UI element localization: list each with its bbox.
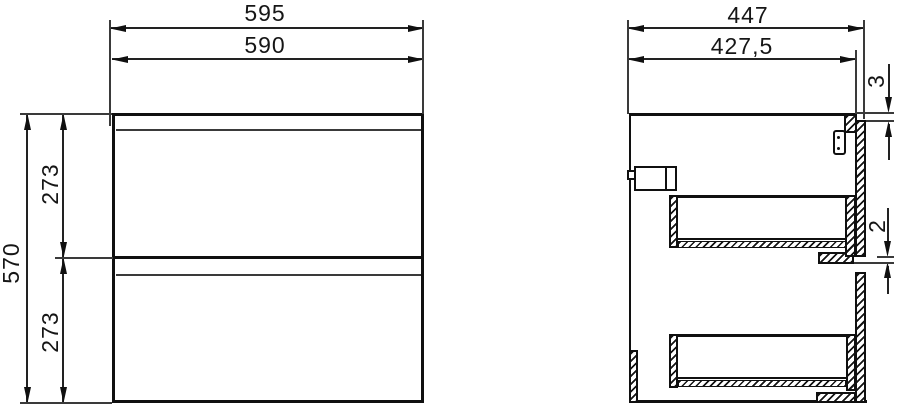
dimension-label-overall-width: 595 <box>225 1 305 25</box>
dimension-label-overall-depth: 447 <box>708 3 788 27</box>
dimension-line-overall-depth <box>628 27 864 29</box>
upper-drawer-bottom-edge-line <box>678 238 846 240</box>
dimension-label-body-width: 590 <box>225 33 305 57</box>
arrowhead-icon <box>884 241 891 257</box>
extension-line <box>627 20 629 114</box>
dimension-label-lower-front-height: 273 <box>38 297 62 367</box>
front-view-upper-drawer-gap-line <box>116 129 421 131</box>
extension-line <box>866 120 894 122</box>
front-view-drawer-separation-line <box>113 256 423 259</box>
technical-drawing-canvas: 595 590 570 273 273 <box>0 0 898 409</box>
extension-line <box>854 262 894 264</box>
side-view-back-bottom-rail-section <box>629 350 638 403</box>
lower-drawer-front-section <box>855 272 866 403</box>
extension-line <box>422 20 424 114</box>
dimension-label-front-gap: 2 <box>865 201 885 251</box>
wall-mount-bracket-tab <box>627 170 636 180</box>
dimension-line-body-depth <box>628 58 856 60</box>
dimension-line-lower-front-height <box>62 258 64 403</box>
dimension-label-body-depth: 427,5 <box>702 34 782 58</box>
dimension-label-upper-front-height: 273 <box>38 149 62 219</box>
arrowhead-icon <box>885 121 892 137</box>
dimension-line-top-gap-upper <box>888 64 890 98</box>
upper-drawer-bottom-panel-section <box>678 241 846 248</box>
upper-drawer-top-edge-line <box>670 195 847 198</box>
extension-line <box>109 20 111 126</box>
extension-line <box>877 256 894 258</box>
hinge-bracket <box>833 130 846 155</box>
front-view-lower-drawer-gap-line <box>116 274 421 276</box>
lower-drawer-front-wall-section <box>846 334 856 391</box>
wall-mount-bracket-inner-line <box>665 168 667 189</box>
dimension-line-overall-height <box>26 114 28 403</box>
upper-drawer-back-wall-section <box>669 195 678 248</box>
lower-drawer-bottom-panel-section <box>678 380 846 387</box>
extension-line <box>855 50 857 114</box>
arrowhead-icon <box>884 262 891 278</box>
wall-mount-bracket <box>634 166 677 191</box>
screw-hole-icon <box>837 136 840 139</box>
lower-drawer-back-wall-section <box>669 334 678 388</box>
side-view-top-line <box>629 113 857 116</box>
dimension-line-overall-width <box>110 27 424 29</box>
dimension-line-upper-front-height <box>62 114 64 258</box>
dimension-line-body-width <box>112 58 424 60</box>
extension-line <box>20 113 112 115</box>
extension-line <box>20 402 112 404</box>
extension-line <box>856 112 894 114</box>
dimension-label-overall-height: 570 <box>0 228 23 298</box>
lower-drawer-top-edge-line <box>670 334 847 337</box>
dimension-label-top-gap: 3 <box>864 56 884 106</box>
extension-line <box>55 257 113 259</box>
dimension-line-front-gap-upper <box>887 208 889 242</box>
side-view-bottom-front-rail-section <box>816 392 856 403</box>
arrowhead-icon <box>885 97 892 113</box>
lower-drawer-bottom-edge-line <box>678 377 846 379</box>
upper-drawer-front-wall-section <box>845 195 856 257</box>
screw-hole-icon <box>837 147 840 150</box>
